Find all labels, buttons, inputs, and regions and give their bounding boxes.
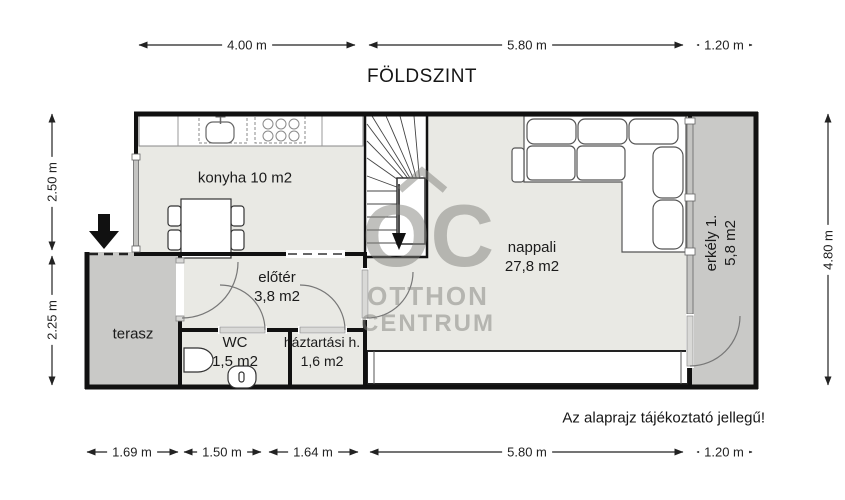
konyha-window [132, 154, 140, 252]
entrance-arrow-icon [89, 214, 119, 249]
dim-bottom-4: 5.80 m [502, 445, 552, 460]
disclaimer-note: Az alaprajz tájékoztató jellegű! [562, 410, 765, 427]
haztartasi-name: háztartási h. [284, 333, 360, 352]
dim-top-3: 1.20 m [699, 38, 749, 53]
dim-left-1: 2.50 m [45, 157, 60, 207]
eloter-name: előtér [254, 268, 300, 287]
page-title: FÖLDSZINT [367, 66, 477, 88]
terasz-label: terasz [113, 325, 154, 344]
nappali-area: 27,8 m2 [505, 257, 559, 276]
wc-label: WC 1,5 m2 [212, 333, 258, 371]
watermark-initials: OC [362, 186, 494, 285]
nappali-window-band [367, 351, 688, 384]
toilet-flush-icon [239, 372, 244, 382]
wc-area: 1,5 m2 [212, 352, 258, 371]
dim-top-2: 5.80 m [502, 38, 552, 53]
nappali-label: nappali 27,8 m2 [505, 238, 559, 276]
wc-basin-icon [184, 348, 213, 372]
watermark-name-line2: CENTRUM [361, 310, 495, 337]
terasz-floor [87, 252, 180, 387]
erkely-name: erkély 1. [702, 215, 721, 272]
eloter-area: 3,8 m2 [254, 287, 300, 306]
erkely-label: erkély 1. 5,8 m2 [702, 215, 740, 272]
floorplan-image: OC OTTHON CENTRUM FÖLDSZINT Az alaprajz … [0, 0, 845, 500]
konyha-label: konyha 10 m2 [198, 169, 292, 188]
eloter-label: előtér 3,8 m2 [254, 268, 300, 306]
nappali-name: nappali [505, 238, 559, 257]
chair [168, 230, 181, 250]
dim-right-1: 4.80 m [821, 225, 836, 275]
wc-name: WC [212, 333, 258, 352]
watermark-logo: OC OTTHON CENTRUM [361, 171, 495, 337]
haztartasi-label: háztartási h. 1,6 m2 [284, 333, 360, 371]
erkely-area: 5,8 m2 [721, 215, 740, 272]
dim-bottom-2: 1.50 m [197, 445, 247, 460]
konyha-eloter-opening [286, 250, 345, 258]
dim-bottom-1: 1.69 m [107, 445, 157, 460]
dim-left-2: 2.25 m [45, 295, 60, 345]
chair [168, 206, 181, 226]
kitchen-counter [139, 113, 363, 146]
chair [231, 230, 244, 250]
dim-bottom-3: 1.64 m [288, 445, 338, 460]
dining-table [181, 199, 231, 258]
watermark-name-line1: OTTHON [367, 281, 489, 311]
dim-top-1: 4.00 m [222, 38, 272, 53]
dim-bottom-5: 1.20 m [699, 445, 749, 460]
haztartasi-area: 1,6 m2 [284, 352, 360, 371]
chair [231, 206, 244, 226]
